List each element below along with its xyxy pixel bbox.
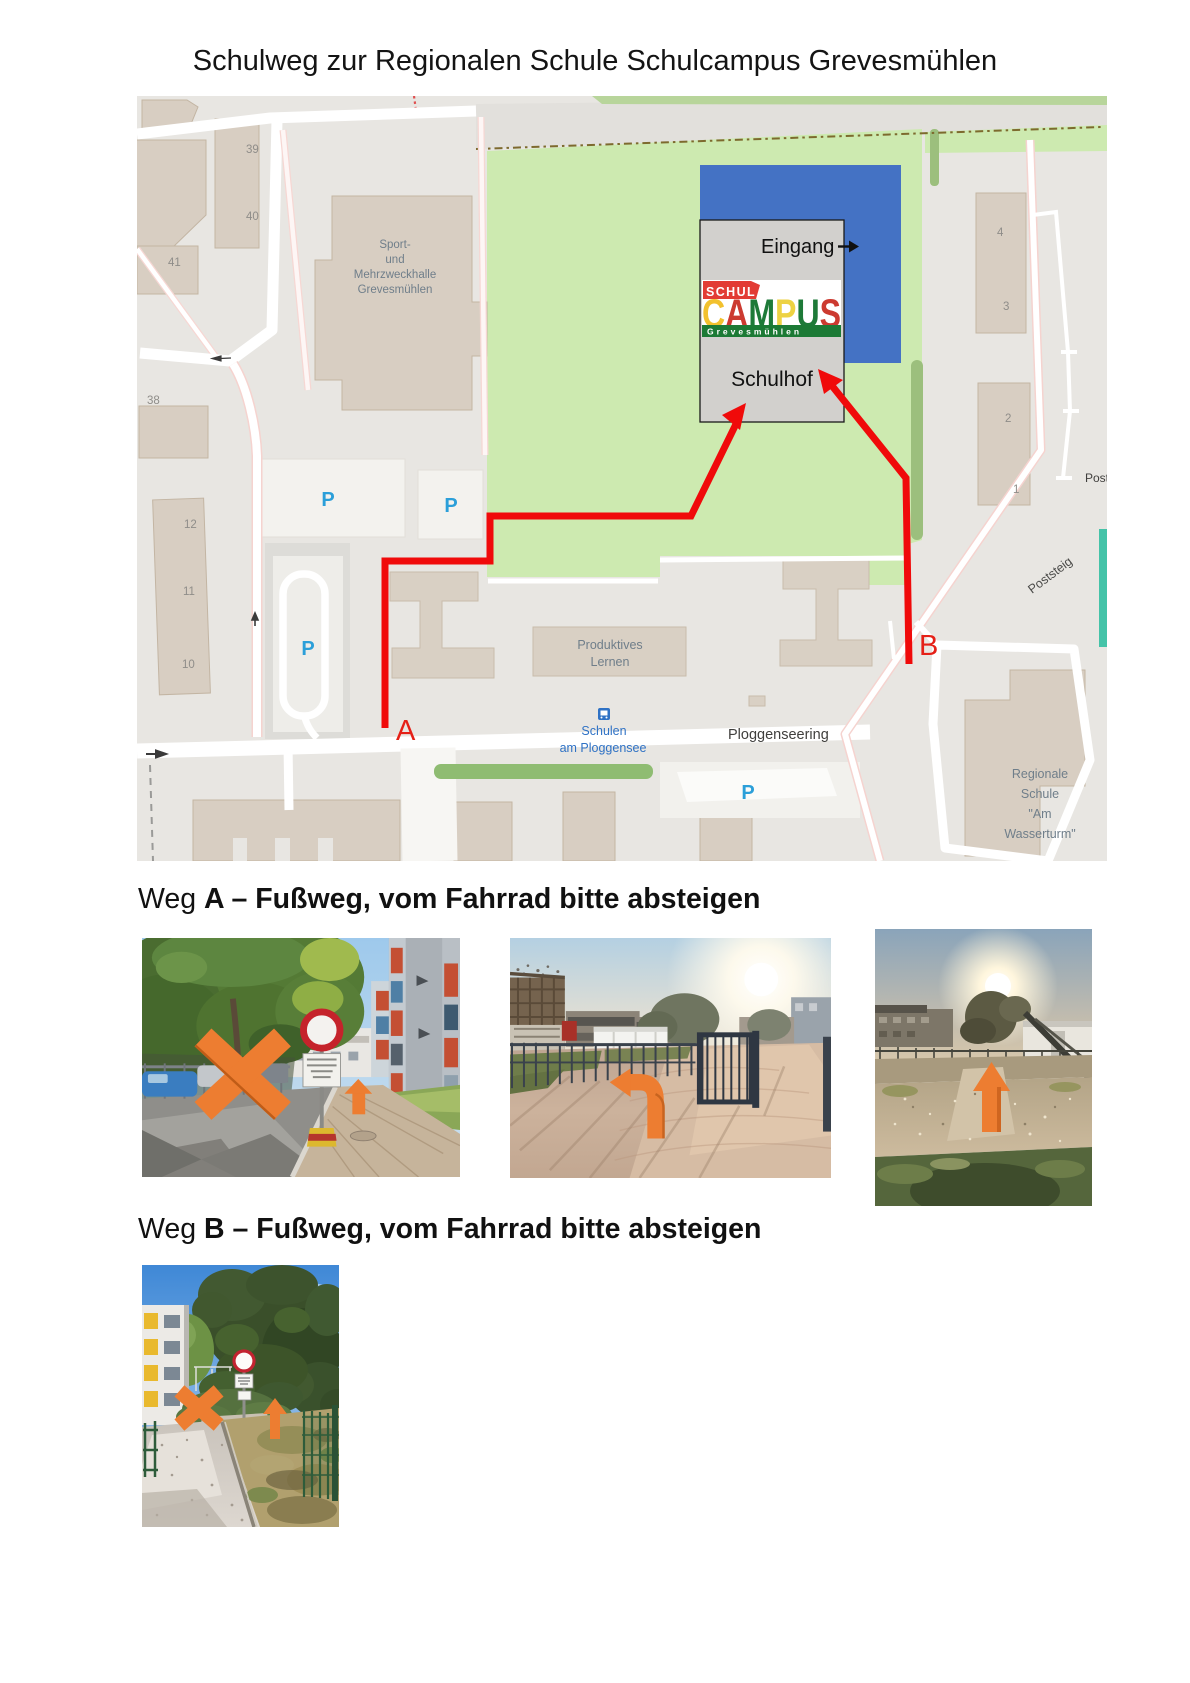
svg-text:Produktives: Produktives — [577, 638, 642, 652]
svg-text:P: P — [321, 489, 334, 511]
svg-text:Schulen: Schulen — [581, 724, 626, 738]
svg-text:Ploggenseering: Ploggenseering — [728, 727, 829, 743]
svg-text:Post: Post — [1085, 471, 1107, 485]
svg-text:39: 39 — [246, 144, 259, 156]
svg-text:Sport-: Sport- — [379, 239, 410, 251]
svg-text:Eingang: Eingang — [761, 236, 834, 258]
svg-text:P: P — [741, 782, 754, 804]
svg-text:38: 38 — [147, 395, 160, 407]
svg-text:Schulhof: Schulhof — [731, 368, 813, 391]
svg-text:3: 3 — [1003, 301, 1009, 313]
svg-text:Lernen: Lernen — [591, 655, 630, 669]
svg-text:Grevesmühlen: Grevesmühlen — [707, 327, 802, 337]
svg-text:4: 4 — [997, 227, 1004, 239]
svg-text:"Am: "Am — [1028, 807, 1051, 821]
svg-text:P: P — [301, 638, 314, 660]
svg-text:1: 1 — [1013, 484, 1019, 496]
svg-text:Regionale: Regionale — [1012, 767, 1068, 781]
svg-text:12: 12 — [184, 519, 197, 531]
svg-text:A: A — [396, 715, 416, 747]
svg-text:am Ploggensee: am Ploggensee — [560, 741, 647, 755]
svg-text:Schule: Schule — [1021, 787, 1059, 801]
svg-text:2: 2 — [1005, 413, 1011, 425]
svg-text:Mehrzweckhalle: Mehrzweckhalle — [354, 269, 436, 281]
svg-text:Grevesmühlen: Grevesmühlen — [358, 284, 433, 296]
svg-text:40: 40 — [246, 211, 259, 223]
svg-text:P: P — [444, 495, 457, 517]
svg-text:und: und — [385, 254, 404, 266]
svg-text:10: 10 — [182, 659, 195, 671]
svg-text:B: B — [919, 630, 938, 662]
svg-text:Wasserturm": Wasserturm" — [1004, 827, 1075, 841]
svg-text:11: 11 — [183, 586, 195, 598]
svg-text:41: 41 — [168, 257, 181, 269]
